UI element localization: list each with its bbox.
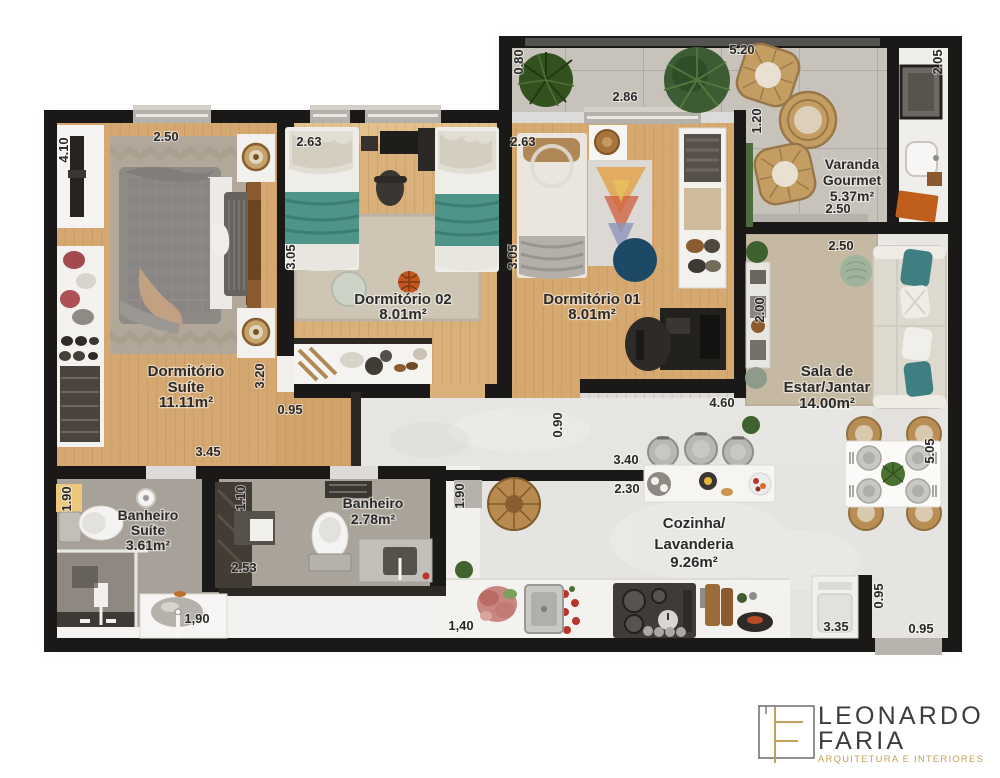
svg-text:Varanda: Varanda (825, 156, 880, 172)
svg-text:5.20: 5.20 (729, 42, 754, 57)
svg-text:Banheiro: Banheiro (118, 507, 179, 523)
svg-text:3.05: 3.05 (505, 244, 520, 269)
svg-text:2.78m²: 2.78m² (351, 511, 396, 527)
svg-text:FARIA: FARIA (818, 727, 906, 755)
svg-text:Sala de: Sala de (801, 363, 854, 380)
svg-text:Lavanderia: Lavanderia (654, 536, 734, 553)
svg-text:3.40: 3.40 (613, 452, 638, 467)
svg-text:1.20: 1.20 (749, 108, 764, 133)
svg-text:2.00: 2.00 (752, 297, 767, 322)
svg-text:1.90: 1.90 (59, 486, 74, 511)
svg-text:0.95: 0.95 (871, 583, 886, 608)
svg-text:3.45: 3.45 (195, 444, 220, 459)
svg-text:4.60: 4.60 (709, 395, 734, 410)
svg-text:2.86: 2.86 (612, 89, 637, 104)
svg-text:LEONARDO: LEONARDO (818, 702, 984, 730)
svg-text:11.11m²: 11.11m² (159, 394, 213, 411)
svg-text:2.05: 2.05 (930, 49, 945, 74)
svg-text:0.95: 0.95 (908, 621, 933, 636)
svg-text:1.90: 1.90 (452, 483, 467, 508)
svg-text:5.05: 5.05 (922, 438, 937, 463)
svg-text:2.53: 2.53 (231, 560, 256, 575)
svg-text:2.50: 2.50 (153, 129, 178, 144)
svg-text:2.50: 2.50 (828, 238, 853, 253)
svg-text:Gourmet: Gourmet (823, 172, 882, 188)
svg-text:3.05: 3.05 (283, 244, 298, 269)
svg-text:Dormitório: Dormitório (148, 363, 225, 380)
svg-text:3.61m²: 3.61m² (126, 537, 171, 553)
svg-text:8.01m²: 8.01m² (379, 306, 427, 323)
svg-text:1,40: 1,40 (448, 618, 473, 633)
svg-text:2.63: 2.63 (296, 134, 321, 149)
svg-text:5.37m²: 5.37m² (830, 188, 875, 204)
svg-text:Cozinha/: Cozinha/ (663, 515, 726, 532)
svg-text:3.35: 3.35 (823, 619, 848, 634)
svg-text:2.63: 2.63 (510, 134, 535, 149)
svg-text:Suíte: Suíte (131, 522, 165, 538)
svg-text:ARQUITETURA E INTERIORES: ARQUITETURA E INTERIORES (818, 754, 984, 765)
svg-text:0.80: 0.80 (511, 49, 526, 74)
svg-text:3.20: 3.20 (252, 363, 267, 388)
svg-text:1,90: 1,90 (184, 611, 209, 626)
svg-text:Banheiro: Banheiro (343, 495, 404, 511)
svg-text:8.01m²: 8.01m² (568, 306, 616, 323)
svg-text:2.30: 2.30 (614, 481, 639, 496)
svg-text:Estar/Jantar: Estar/Jantar (784, 379, 871, 396)
svg-text:4.10: 4.10 (56, 137, 71, 162)
svg-text:14.00m²: 14.00m² (799, 395, 855, 412)
svg-text:1.10: 1.10 (233, 485, 248, 510)
svg-text:0.95: 0.95 (277, 402, 302, 417)
svg-text:9.26m²: 9.26m² (670, 554, 718, 571)
svg-text:0.90: 0.90 (550, 412, 565, 437)
